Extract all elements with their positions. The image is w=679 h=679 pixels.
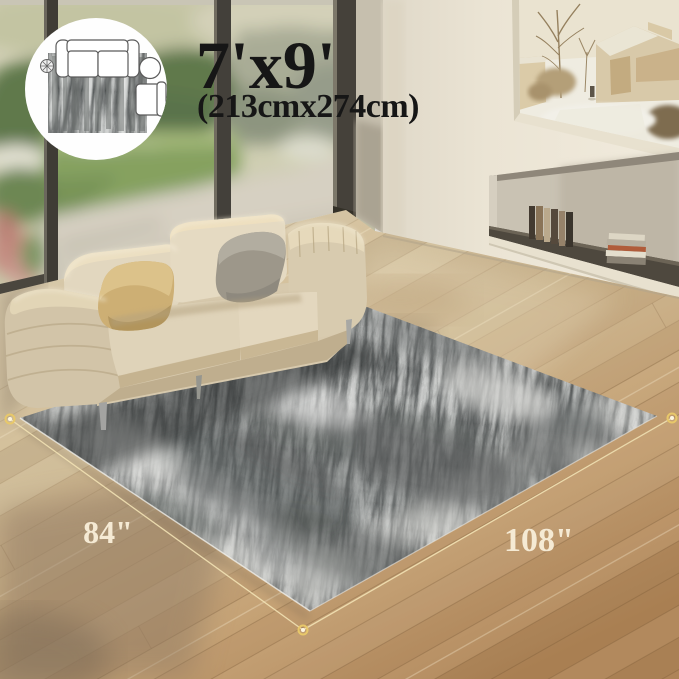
svg-text:(213cmx274cm): (213cmx274cm): [197, 88, 419, 125]
svg-text:108": 108": [504, 522, 574, 559]
svg-text:84": 84": [83, 514, 133, 550]
